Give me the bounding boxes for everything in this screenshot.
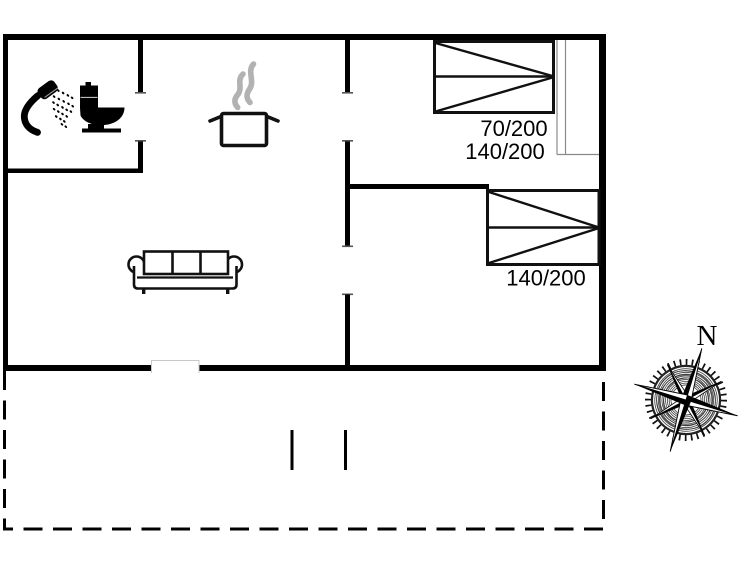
svg-text:140/200: 140/200 [465, 139, 545, 164]
svg-text:N: N [697, 320, 718, 352]
svg-text:70/200: 70/200 [480, 116, 547, 141]
svg-text:140/200: 140/200 [506, 266, 586, 291]
